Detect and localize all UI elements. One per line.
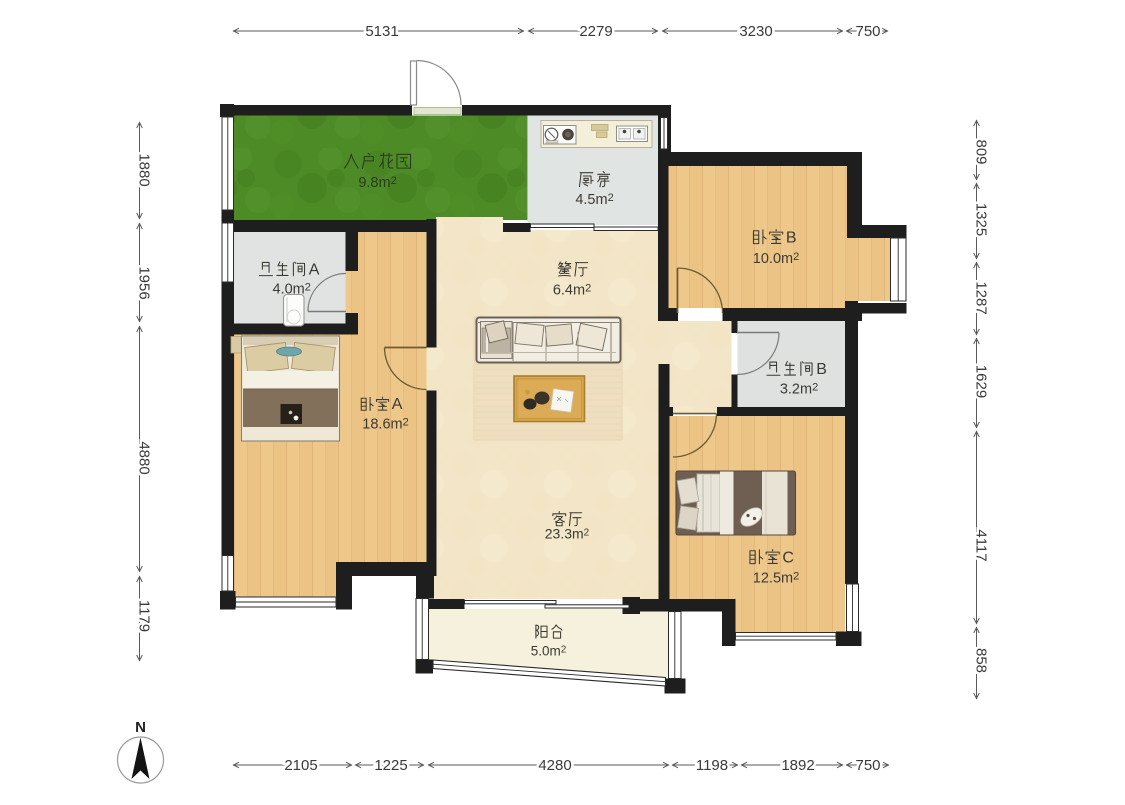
svg-text:10.0m2: 10.0m2 xyxy=(753,251,799,267)
svg-text:4880: 4880 xyxy=(136,441,153,474)
svg-text:5131: 5131 xyxy=(365,23,398,40)
svg-text:1179: 1179 xyxy=(136,600,153,632)
svg-text:4117: 4117 xyxy=(973,529,990,561)
svg-text:3230: 3230 xyxy=(739,23,772,40)
svg-text:1880: 1880 xyxy=(136,153,153,186)
svg-text:2279: 2279 xyxy=(579,23,612,40)
svg-text:A: A xyxy=(309,262,320,279)
svg-text:4280: 4280 xyxy=(538,757,571,774)
svg-text:23.3m2: 23.3m2 xyxy=(545,526,590,542)
svg-text:809: 809 xyxy=(973,139,990,164)
svg-text:A: A xyxy=(392,396,403,413)
svg-text:2105: 2105 xyxy=(284,757,317,774)
svg-text:750: 750 xyxy=(855,23,880,40)
svg-text:1629: 1629 xyxy=(973,365,990,398)
svg-text:C: C xyxy=(782,550,794,567)
svg-text:B: B xyxy=(816,361,827,378)
svg-text:B: B xyxy=(786,230,797,247)
svg-text:1956: 1956 xyxy=(136,266,153,299)
svg-text:1892: 1892 xyxy=(781,757,814,774)
svg-text:1198: 1198 xyxy=(696,757,728,774)
svg-text:858: 858 xyxy=(973,648,990,673)
svg-text:12.5m2: 12.5m2 xyxy=(753,571,799,587)
svg-text:1225: 1225 xyxy=(374,757,407,774)
svg-text:750: 750 xyxy=(855,757,880,774)
svg-text:18.6m2: 18.6m2 xyxy=(362,417,408,433)
svg-text:N: N xyxy=(135,719,146,736)
svg-text:1325: 1325 xyxy=(973,203,990,236)
svg-text:1287: 1287 xyxy=(973,281,990,314)
